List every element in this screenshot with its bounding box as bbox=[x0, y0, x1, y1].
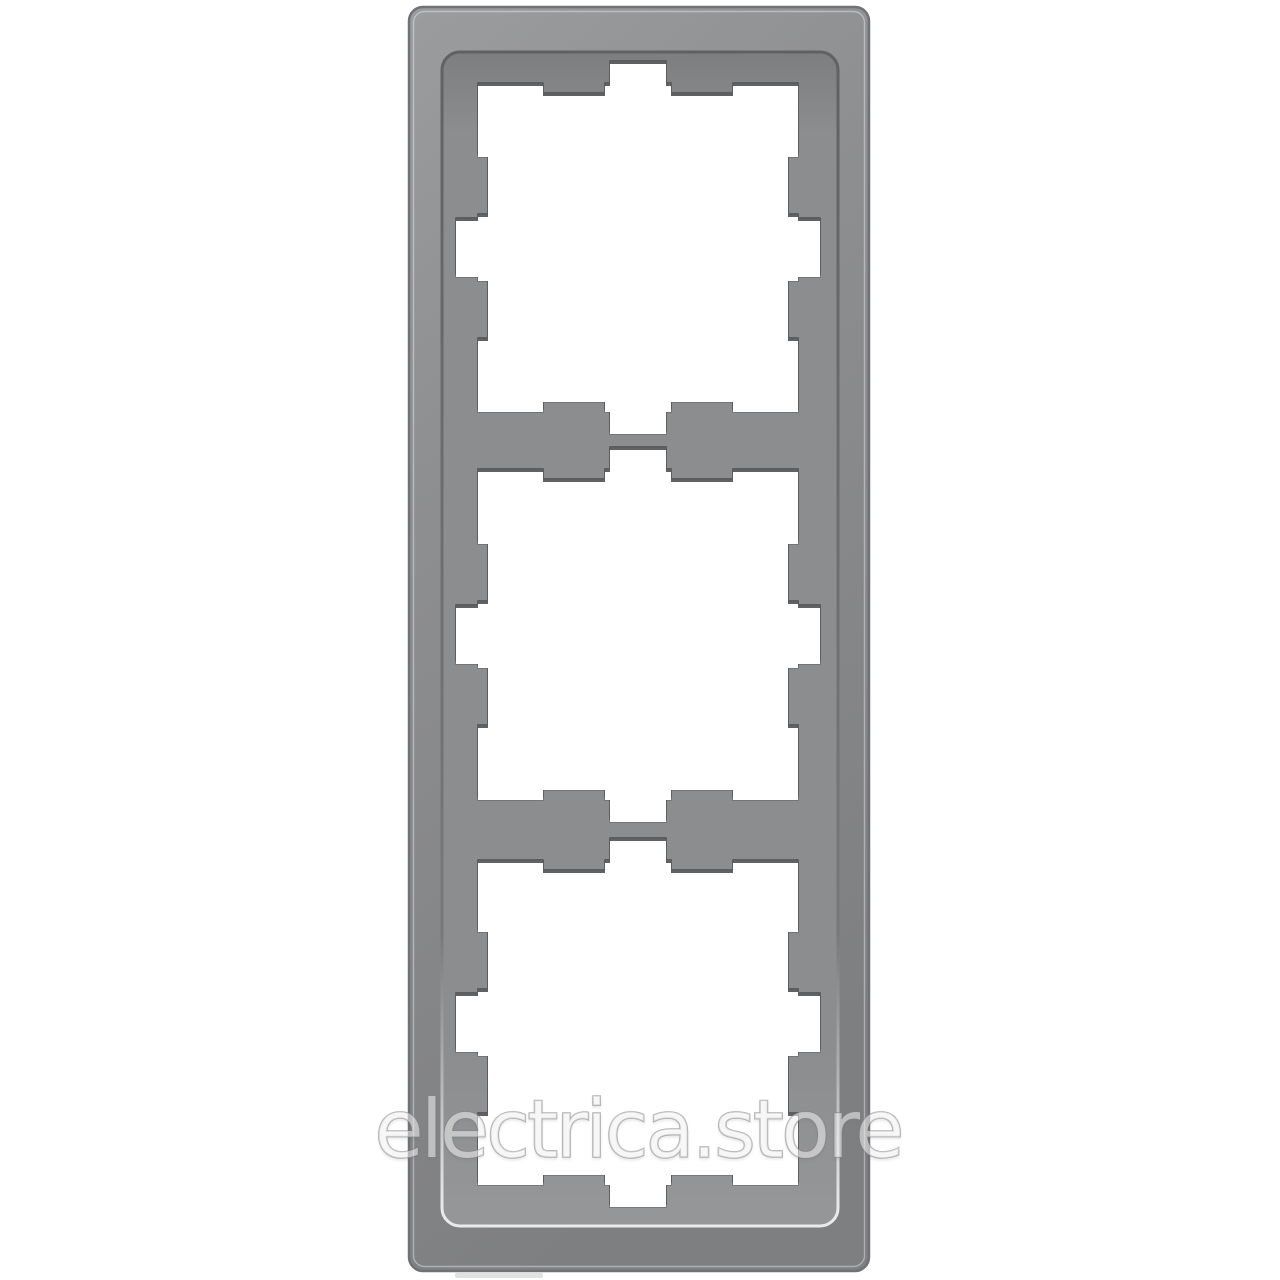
gang-opening-1 bbox=[456, 64, 820, 434]
frame-3gang-illustration: electrica.store bbox=[0, 0, 1280, 1280]
gang-openings bbox=[456, 61, 820, 1207]
product-photo: electrica.store bbox=[0, 0, 1280, 1280]
watermark-text: electrica.store bbox=[375, 1083, 902, 1176]
gang-opening-2 bbox=[456, 450, 820, 822]
manufacturer-marking bbox=[455, 1273, 543, 1278]
